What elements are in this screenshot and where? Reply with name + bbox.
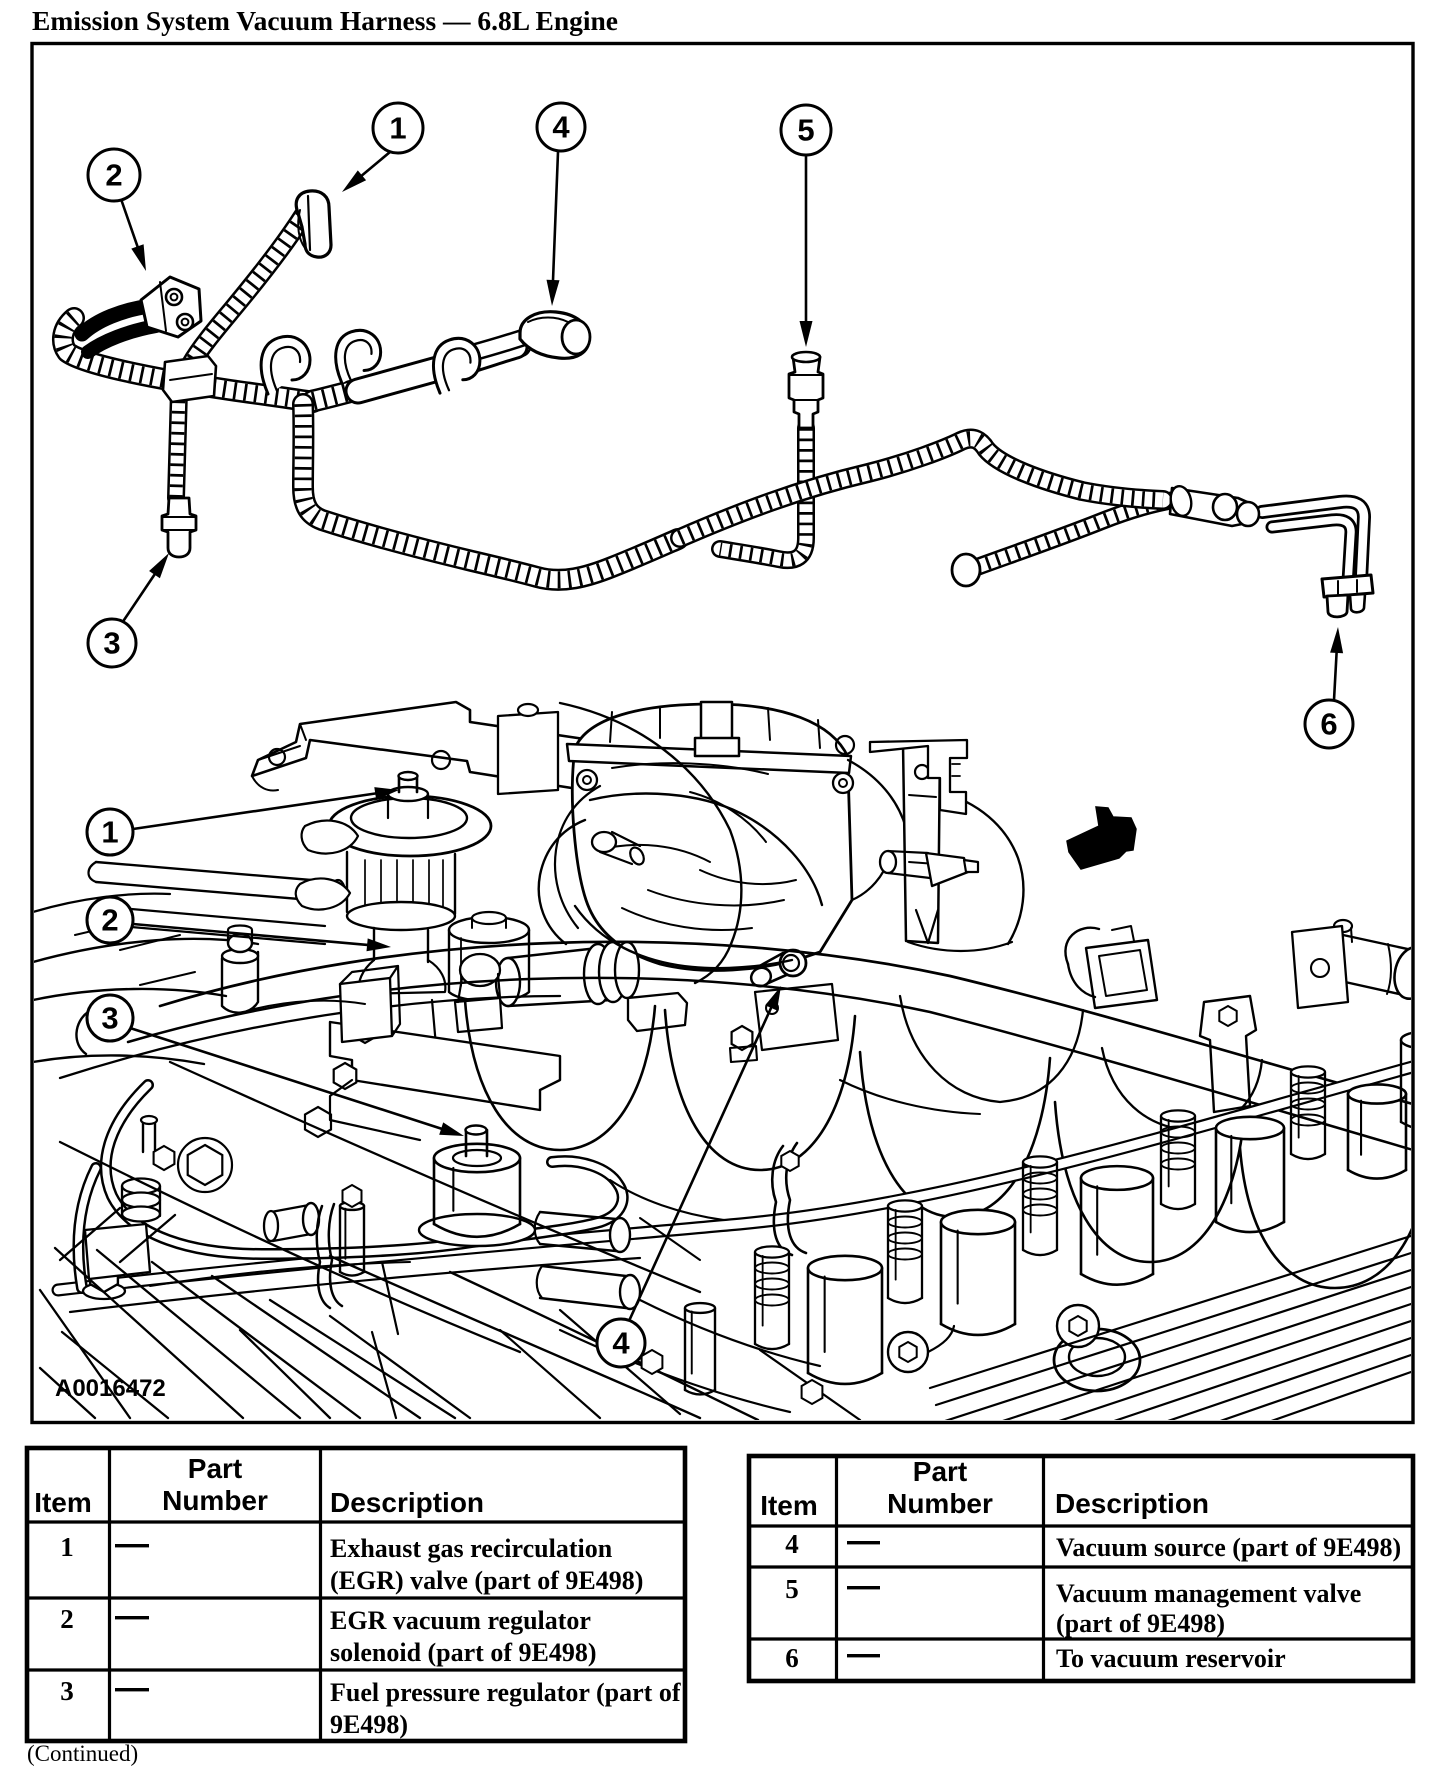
svg-text:Fuel pressure regulator (part: Fuel pressure regulator (part of bbox=[330, 1678, 681, 1707]
svg-text:Emission System Vacuum Harness: Emission System Vacuum Harness — 6.8L En… bbox=[32, 5, 618, 36]
svg-text:Description: Description bbox=[1055, 1488, 1209, 1519]
svg-text:2: 2 bbox=[60, 1604, 74, 1634]
svg-text:4: 4 bbox=[552, 110, 570, 145]
svg-text:(part of 9E498): (part of 9E498) bbox=[1056, 1609, 1225, 1638]
svg-text:2: 2 bbox=[105, 158, 122, 193]
svg-text:1: 1 bbox=[101, 815, 118, 850]
svg-text:(EGR) valve (part of 9E498): (EGR) valve (part of 9E498) bbox=[330, 1566, 643, 1595]
svg-text:6: 6 bbox=[1320, 707, 1337, 742]
svg-text:Part: Part bbox=[188, 1453, 242, 1484]
svg-text:A0016472: A0016472 bbox=[55, 1375, 166, 1402]
svg-text:Description: Description bbox=[330, 1487, 484, 1518]
svg-text:Item: Item bbox=[34, 1487, 92, 1518]
svg-text:4: 4 bbox=[612, 1326, 630, 1361]
svg-text:2: 2 bbox=[101, 903, 118, 938]
svg-text:1: 1 bbox=[60, 1532, 74, 1562]
svg-text:Vacuum source (part of 9E498): Vacuum source (part of 9E498) bbox=[1056, 1533, 1401, 1562]
svg-text:3: 3 bbox=[103, 626, 120, 661]
svg-text:4: 4 bbox=[785, 1529, 799, 1559]
svg-text:9E498): 9E498) bbox=[330, 1710, 408, 1739]
svg-text:Number: Number bbox=[887, 1488, 993, 1519]
svg-text:3: 3 bbox=[60, 1676, 74, 1706]
svg-text:Number: Number bbox=[162, 1485, 268, 1516]
svg-text:Exhaust gas recirculation: Exhaust gas recirculation bbox=[330, 1534, 613, 1563]
svg-text:solenoid (part of 9E498): solenoid (part of 9E498) bbox=[330, 1638, 597, 1667]
svg-text:3: 3 bbox=[101, 1001, 118, 1036]
svg-text:To vacuum reservoir: To vacuum reservoir bbox=[1056, 1644, 1286, 1673]
svg-text:Vacuum management valve: Vacuum management valve bbox=[1056, 1579, 1361, 1608]
svg-text:(Continued): (Continued) bbox=[27, 1741, 138, 1766]
svg-text:EGR vacuum regulator: EGR vacuum regulator bbox=[330, 1606, 591, 1635]
svg-text:1: 1 bbox=[389, 111, 406, 146]
svg-text:Item: Item bbox=[760, 1490, 818, 1521]
svg-text:5: 5 bbox=[797, 113, 814, 148]
svg-text:Part: Part bbox=[913, 1456, 967, 1487]
svg-text:6: 6 bbox=[785, 1643, 799, 1673]
svg-text:5: 5 bbox=[785, 1574, 799, 1604]
